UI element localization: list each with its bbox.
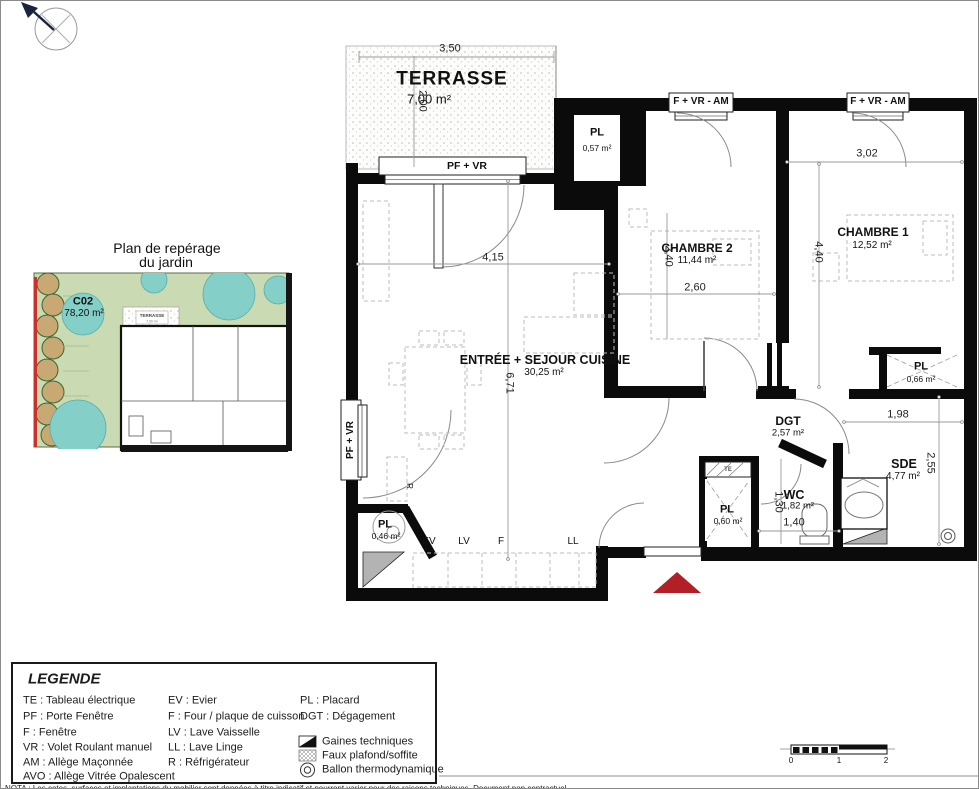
legend-col1-row5: AVO : Allège Vitrée Opalescent — [23, 772, 175, 783]
legend-col1-row3: VR : Volet Roulant manuel — [23, 743, 152, 754]
gaine-grise-cuisine — [363, 552, 404, 587]
entrance-arrow-icon — [653, 572, 701, 593]
fridge-label: R — [405, 483, 413, 489]
dim-4-40: 4,40 — [813, 241, 824, 262]
dim-4-15: 4,15 — [482, 253, 503, 264]
room-label-sejour: ENTRÉE + SEJOUR CUISINE — [460, 354, 631, 367]
legend-symbol-faux-plafond: Faux plafond/soffite — [322, 751, 418, 762]
dim-2-00: 2,00 — [417, 90, 428, 111]
floorplan-page: TERRASSE 7,00 m² 3,50 2,00 PF + VR PF + … — [0, 0, 979, 789]
dim-2-55: 2,55 — [925, 452, 936, 473]
room-area-sejour: 30,25 m² — [524, 368, 563, 378]
room-area-chambre2: 11,44 m² — [678, 256, 717, 266]
dim-3-02: 3,02 — [856, 149, 877, 160]
door-leaf-sejour — [434, 184, 443, 268]
room-label-pl-entree: PL — [590, 128, 604, 139]
window-pf-vr-top: PF + VR — [447, 161, 487, 172]
room-label-chambre1: CHAMBRE 1 — [837, 226, 908, 238]
minimap-terrasse-area: 7,00 m² — [146, 320, 158, 324]
room-label-pl-cuisine: PL — [378, 520, 392, 531]
dim-1-98: 1,98 — [887, 410, 908, 421]
terrasse-title: TERRASSE — [396, 70, 507, 89]
room-area-pl-hall: 0,60 m² — [714, 517, 743, 526]
dim-2-60: 2,60 — [684, 283, 705, 294]
room-area-pl-cuisine: 0,46 m² — [372, 532, 401, 541]
compass-north-icon — [21, 2, 77, 50]
room-label-pl-chambre: PL — [914, 362, 928, 373]
sink — [845, 492, 883, 518]
dim-2-40: 2,40 — [663, 245, 674, 266]
wall-diagonal-dgt — [780, 443, 825, 464]
room-area-pl-chambre: 0,66 m² — [907, 375, 936, 384]
legend-col3-row0: PL : Placard — [300, 696, 360, 707]
legend-title: LEGENDE — [28, 672, 101, 687]
minimap-title-line2: du jardin — [139, 255, 193, 269]
dim-1-30: 1,30 — [773, 491, 784, 512]
nota-footer: NOTA : Les cotes, surfaces et implantati… — [5, 784, 975, 789]
legend-col2-row0: EV : Evier — [168, 696, 217, 707]
scale-tick-1: 1 — [837, 757, 841, 765]
legend-col1-row0: TE : Tableau électrique — [23, 696, 135, 707]
window-pf-vr-left: PF + VR — [346, 421, 356, 459]
door-leaf-entrance — [644, 547, 701, 556]
scale-bar — [780, 745, 895, 754]
legend-col3-row1: DGT : Dégagement — [300, 712, 395, 723]
wall-diagonal-kitchen — [405, 508, 433, 557]
legend-col1-row4: AM : Allège Maçonnée — [23, 758, 133, 769]
legend-col2-row4: R : Réfrigérateur — [168, 758, 249, 769]
garden-red-boundary — [34, 277, 37, 447]
dim-6-71: 6,71 — [504, 372, 515, 393]
minimap-lot-label: C02 — [73, 297, 93, 308]
legend-col1-row1: PF : Porte Fenêtre — [23, 712, 113, 723]
legend-col2-row3: LL : Lave Linge — [168, 743, 243, 754]
evier-label: EV — [422, 537, 435, 547]
room-area-sde: 4,77 m² — [886, 472, 920, 482]
room-area-wc: 1,82 m² — [782, 501, 814, 511]
legend-symbol-gaines: Gaines techniques — [322, 737, 413, 748]
four-label: F — [498, 537, 504, 547]
room-label-pl-hall: PL — [720, 505, 734, 516]
scale-tick-2: 2 — [884, 757, 888, 765]
room-area-dgt: 2,57 m² — [772, 428, 804, 438]
legend-col2-row1: F : Four / plaque de cuisson — [168, 712, 304, 723]
dim-3-50: 3,50 — [439, 44, 460, 55]
room-label-dgt: DGT — [775, 415, 800, 427]
scale-tick-0: 0 — [789, 757, 793, 765]
minimap-terrasse-label: TERRASSE — [140, 314, 165, 319]
fixtures — [363, 478, 955, 587]
window-f-vr-am-1: F + VR - AM — [673, 97, 728, 107]
lave-vaisselle-label: LV — [458, 537, 470, 547]
room-label-sde: SDE — [891, 458, 917, 471]
legend-symbol-ballon: Ballon thermodynamique — [322, 765, 444, 776]
window-f-vr-am-2: F + VR - AM — [850, 97, 905, 107]
terrasse-zone — [346, 46, 556, 169]
gaine-grise-sde — [843, 528, 887, 544]
room-area-chambre1: 12,52 m² — [852, 241, 891, 251]
lave-linge-label: LL — [567, 537, 578, 547]
terrasse-area: 7,00 m² — [407, 93, 451, 106]
te-label: TE — [724, 467, 732, 473]
dim-1-40: 1,40 — [783, 518, 804, 529]
legend-col1-row2: F : Fenêtre — [23, 728, 77, 739]
room-area-pl-entree: 0,57 m² — [583, 144, 612, 153]
legend-col2-row2: LV : Lave Vaisselle — [168, 728, 260, 739]
minimap-title-line1: Plan de repérage — [113, 241, 220, 255]
minimap-lot-area: 78,20 m² — [64, 309, 103, 319]
